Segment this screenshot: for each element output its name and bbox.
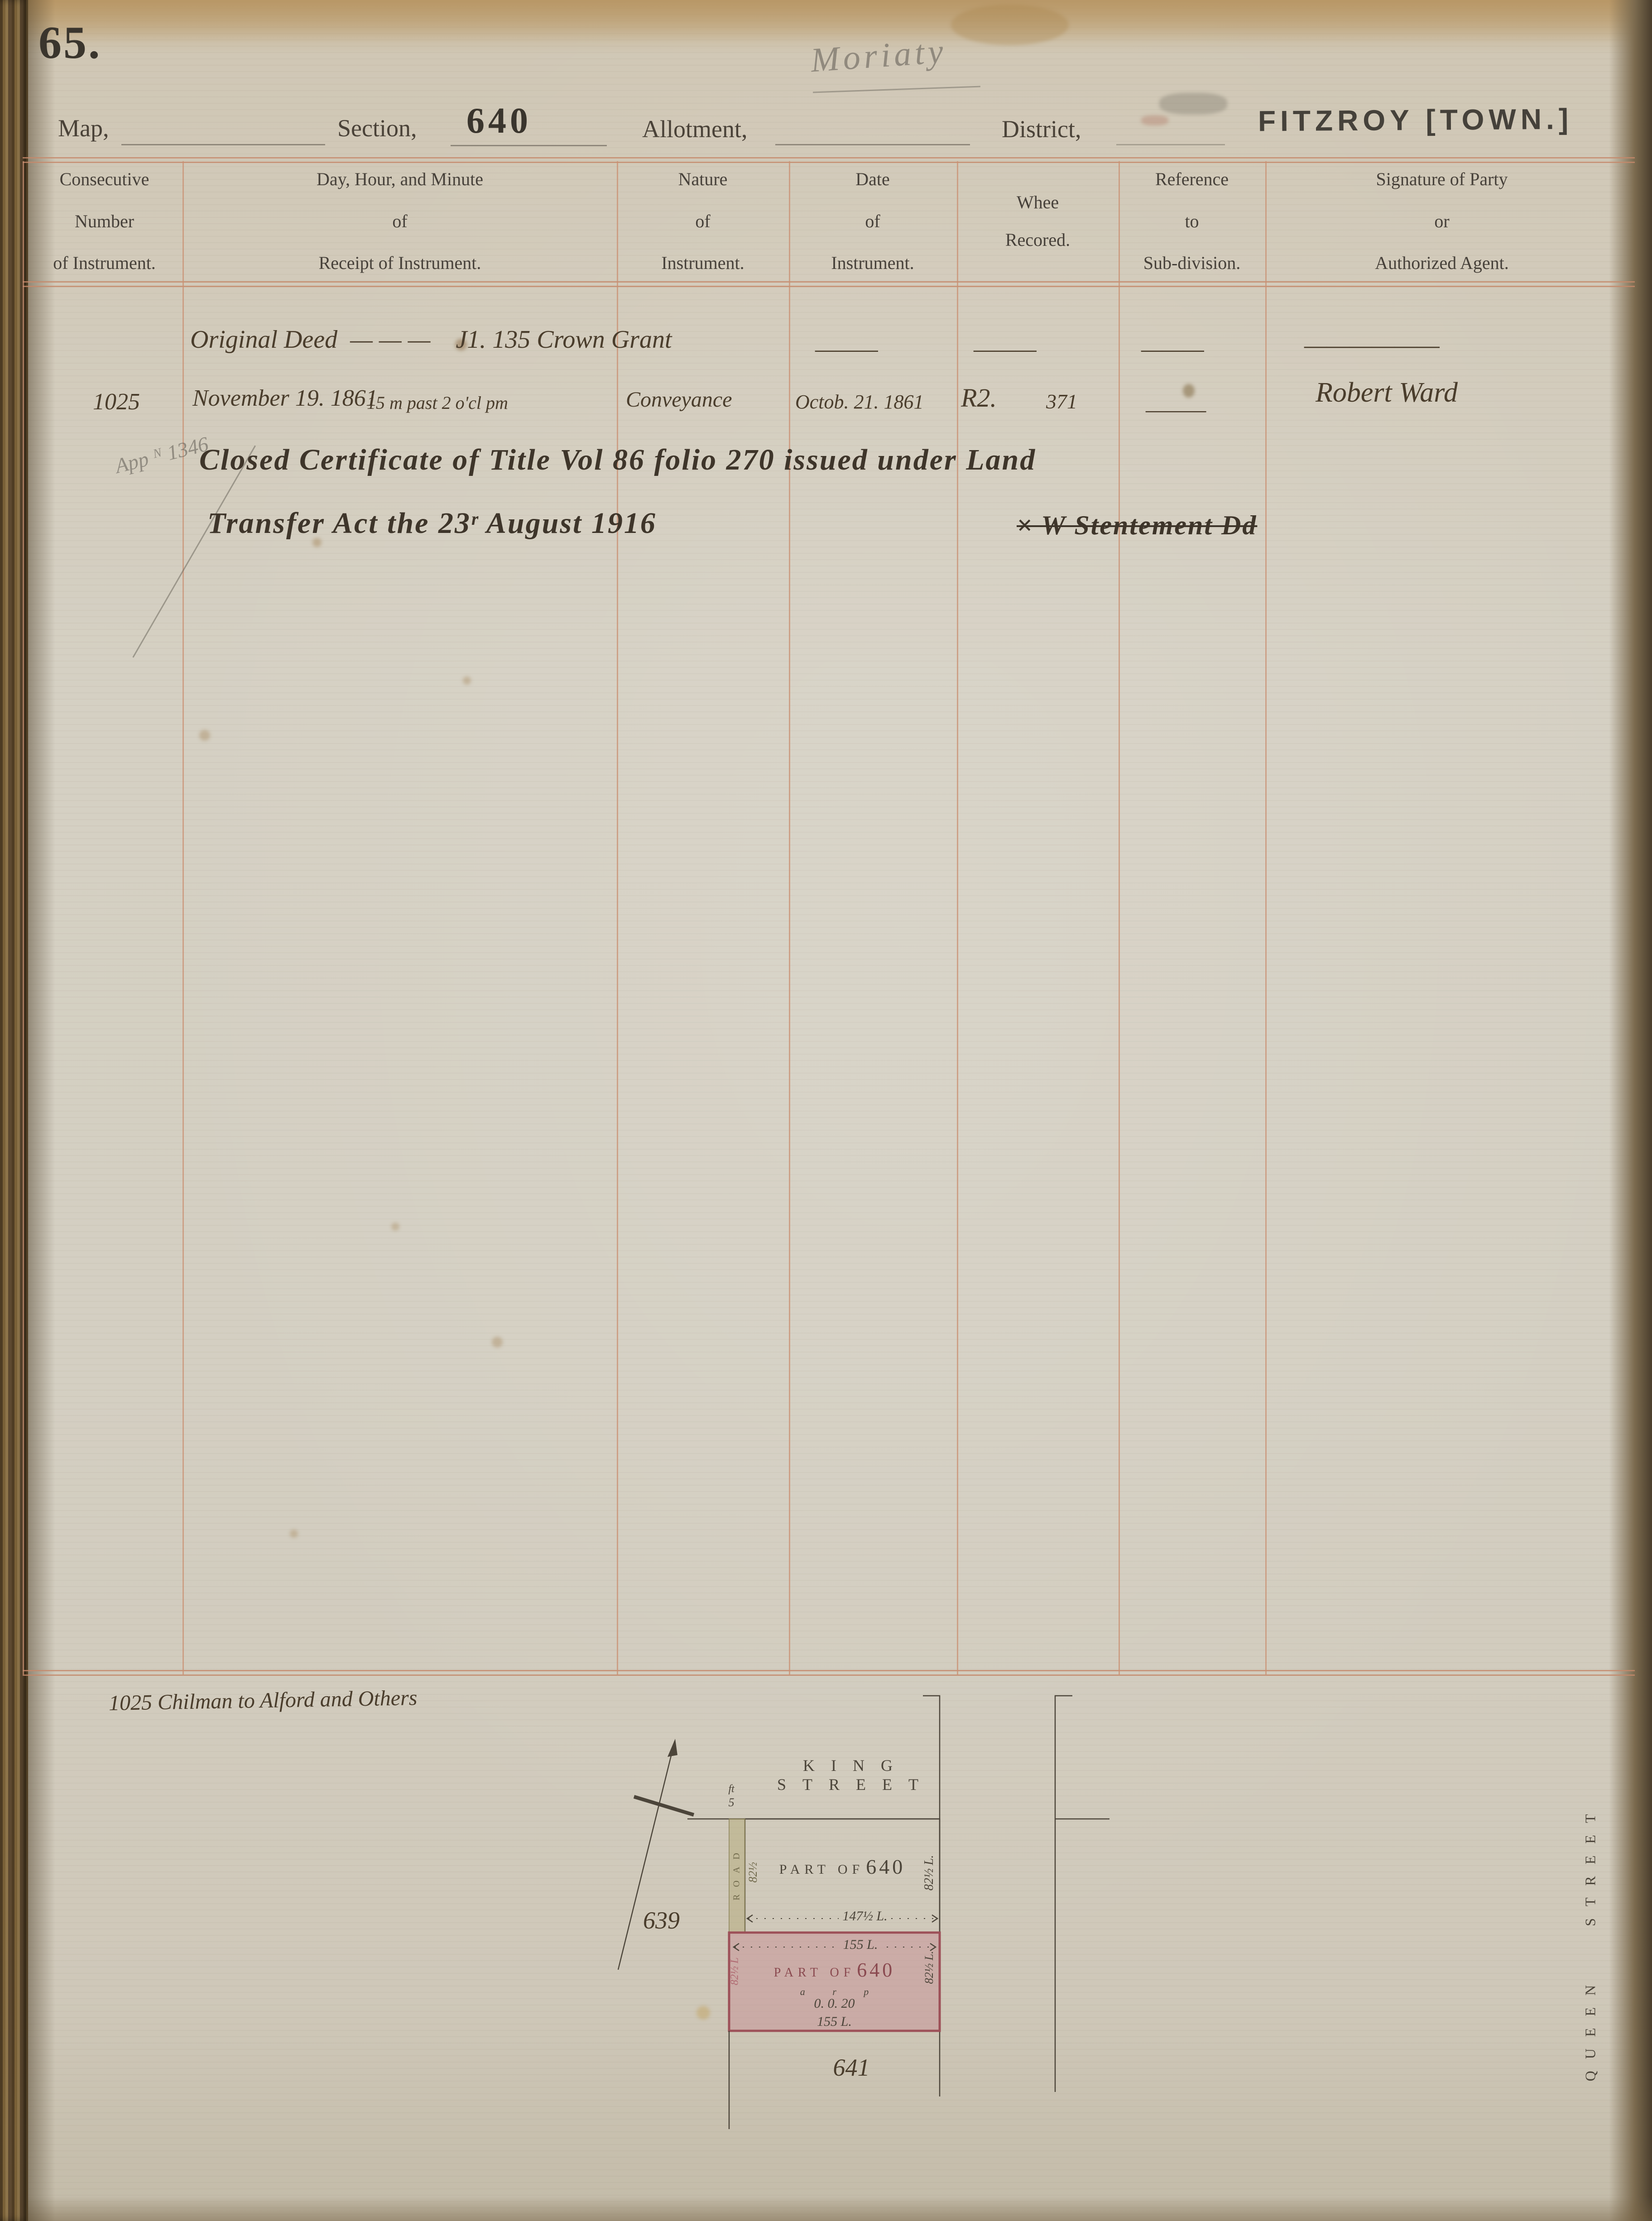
adjacent-section-639: 639 <box>643 1906 680 1934</box>
table-bottom-rule <box>23 1670 1635 1671</box>
road-width-unit: ft <box>718 1783 745 1795</box>
pink-parcel-label: PART OF 640 <box>729 1958 940 1981</box>
road-label: ROAD <box>732 1819 742 1928</box>
book-binding-shadow <box>28 0 55 2221</box>
foxing-spot <box>951 5 1069 45</box>
district-label: District, <box>1002 115 1081 143</box>
king-street-label: KING STREET <box>706 1756 1005 1794</box>
adjacent-section-641: 641 <box>815 2053 888 2082</box>
district-blank-line <box>1116 144 1225 145</box>
column-rule <box>957 161 958 1674</box>
ledger-page: 65. Moriaty Map, Section, 640 Allotment,… <box>0 0 1652 2221</box>
header-bottom-rule <box>23 286 1635 287</box>
pencil-heading-underline <box>813 86 980 93</box>
foxing-spot <box>290 1530 298 1538</box>
entry2-receipt-date: November 19. 1861 <box>192 385 378 412</box>
map-label: Map, <box>58 114 109 142</box>
pink-dim-right: 82½ L. <box>922 1922 936 2013</box>
column-header-consecutive-number: Consecutive Number of Instrument. <box>26 168 182 273</box>
entry2-recorded-folio: 371 <box>1046 389 1077 413</box>
table-top-rule <box>23 162 1635 163</box>
queen-street-label: QUEEN STREET <box>1582 1802 1599 2082</box>
column-rule <box>182 161 184 1674</box>
north-arrow-head <box>668 1739 677 1757</box>
column-header-date: Date of Instrument. <box>793 168 952 273</box>
pencil-application-ref: App ᴺ 1346 <box>113 432 211 478</box>
pink-area-value: 0. 0. 20 <box>729 1996 940 2011</box>
upper-dim-bottom: 147½ L. <box>840 1909 890 1924</box>
table-bottom-rule <box>23 1674 1635 1676</box>
entry2-recorded-book: R2. <box>961 383 997 413</box>
pink-parcel-number: 640 <box>857 1959 895 1981</box>
certificate-note-line1: Closed Certificate of Title Vol 86 folio… <box>199 443 1036 477</box>
entry2-number: 1025 <box>93 389 140 415</box>
section-label: Section, <box>337 114 417 142</box>
map-blank-line <box>121 144 325 145</box>
column-rule <box>1265 161 1267 1674</box>
foxing-spot <box>391 1223 399 1231</box>
north-arrow-tick <box>634 1797 694 1815</box>
entry2-signature: Robert Ward <box>1316 377 1458 409</box>
column-header-reference: Reference to Sub-division. <box>1123 168 1261 273</box>
upper-parcel-prefix: PART OF <box>779 1862 864 1877</box>
upper-dim-right: 82½ L. <box>922 1828 936 1918</box>
upper-parcel-number: 640 <box>866 1855 905 1878</box>
foxing-spot <box>199 730 210 741</box>
page-number: 65. <box>38 16 102 69</box>
column-rule <box>23 161 24 1674</box>
footer-note: 1025 Chilman to Alford and Others <box>109 1685 418 1716</box>
upper-parcel-label: PART OF 640 <box>745 1855 940 1879</box>
page-bottom-edge <box>0 2196 1652 2221</box>
column-rule <box>1119 161 1120 1674</box>
pink-dim-bottom: 155 L. <box>729 2014 940 2029</box>
column-header-nature: Nature of Instrument. <box>621 168 784 273</box>
entry2-reference-dash: ——— <box>1146 396 1206 422</box>
entry2-nature: Conveyance <box>626 387 732 412</box>
entry2-receipt-time: 15 m past 2 o'cl pm <box>367 392 508 413</box>
foxing-spot <box>492 1337 503 1348</box>
pink-dim-left: 82½ L <box>729 1926 741 2017</box>
allotment-label: Allotment, <box>642 115 747 143</box>
foxing-spot <box>1183 384 1195 398</box>
column-header-receipt: Day, Hour, and Minute of Receipt of Inst… <box>187 168 613 273</box>
column-header-when-recorded: Whee Recored. <box>961 168 1114 273</box>
column-rule <box>617 161 618 1674</box>
entry1-text: Original Deed — — — J1. 135 Crown Grant <box>190 325 672 354</box>
cancelled-signature: × W Stentement Dd <box>1017 510 1257 541</box>
table-top-rule <box>23 157 1635 158</box>
road-width-value: 5 <box>718 1796 745 1809</box>
entry1-signature-line: —————— <box>1304 331 1440 360</box>
pink-dim-top: 155 L. <box>836 1937 885 1952</box>
entry1-reference-dash: ——— <box>1141 336 1204 363</box>
entry2-date: Octob. 21. 1861 <box>795 390 924 413</box>
page-top-edge <box>0 0 1652 43</box>
north-arrow <box>618 1741 675 1970</box>
certificate-note-line2: Transfer Act the 23ʳ August 1916 <box>207 506 657 541</box>
section-underline <box>451 145 607 146</box>
foxing-spot <box>463 676 471 685</box>
entry1-date-dash: ——— <box>815 336 878 363</box>
district-value-stamp: FITZROY [TOWN.] <box>1258 102 1573 138</box>
column-header-signature: Signature of Party or Authorized Agent. <box>1270 168 1614 273</box>
header-bottom-rule <box>23 281 1635 283</box>
page-right-edge <box>1609 0 1652 2221</box>
pink-parcel-prefix: PART OF <box>774 1966 855 1980</box>
ink-smudge <box>1159 93 1227 115</box>
section-value: 640 <box>466 101 532 142</box>
allotment-blank-line <box>775 144 970 145</box>
ink-smudge <box>1141 115 1168 125</box>
entry1-recorded-dash: ——— <box>974 336 1037 363</box>
column-rule <box>789 161 790 1674</box>
